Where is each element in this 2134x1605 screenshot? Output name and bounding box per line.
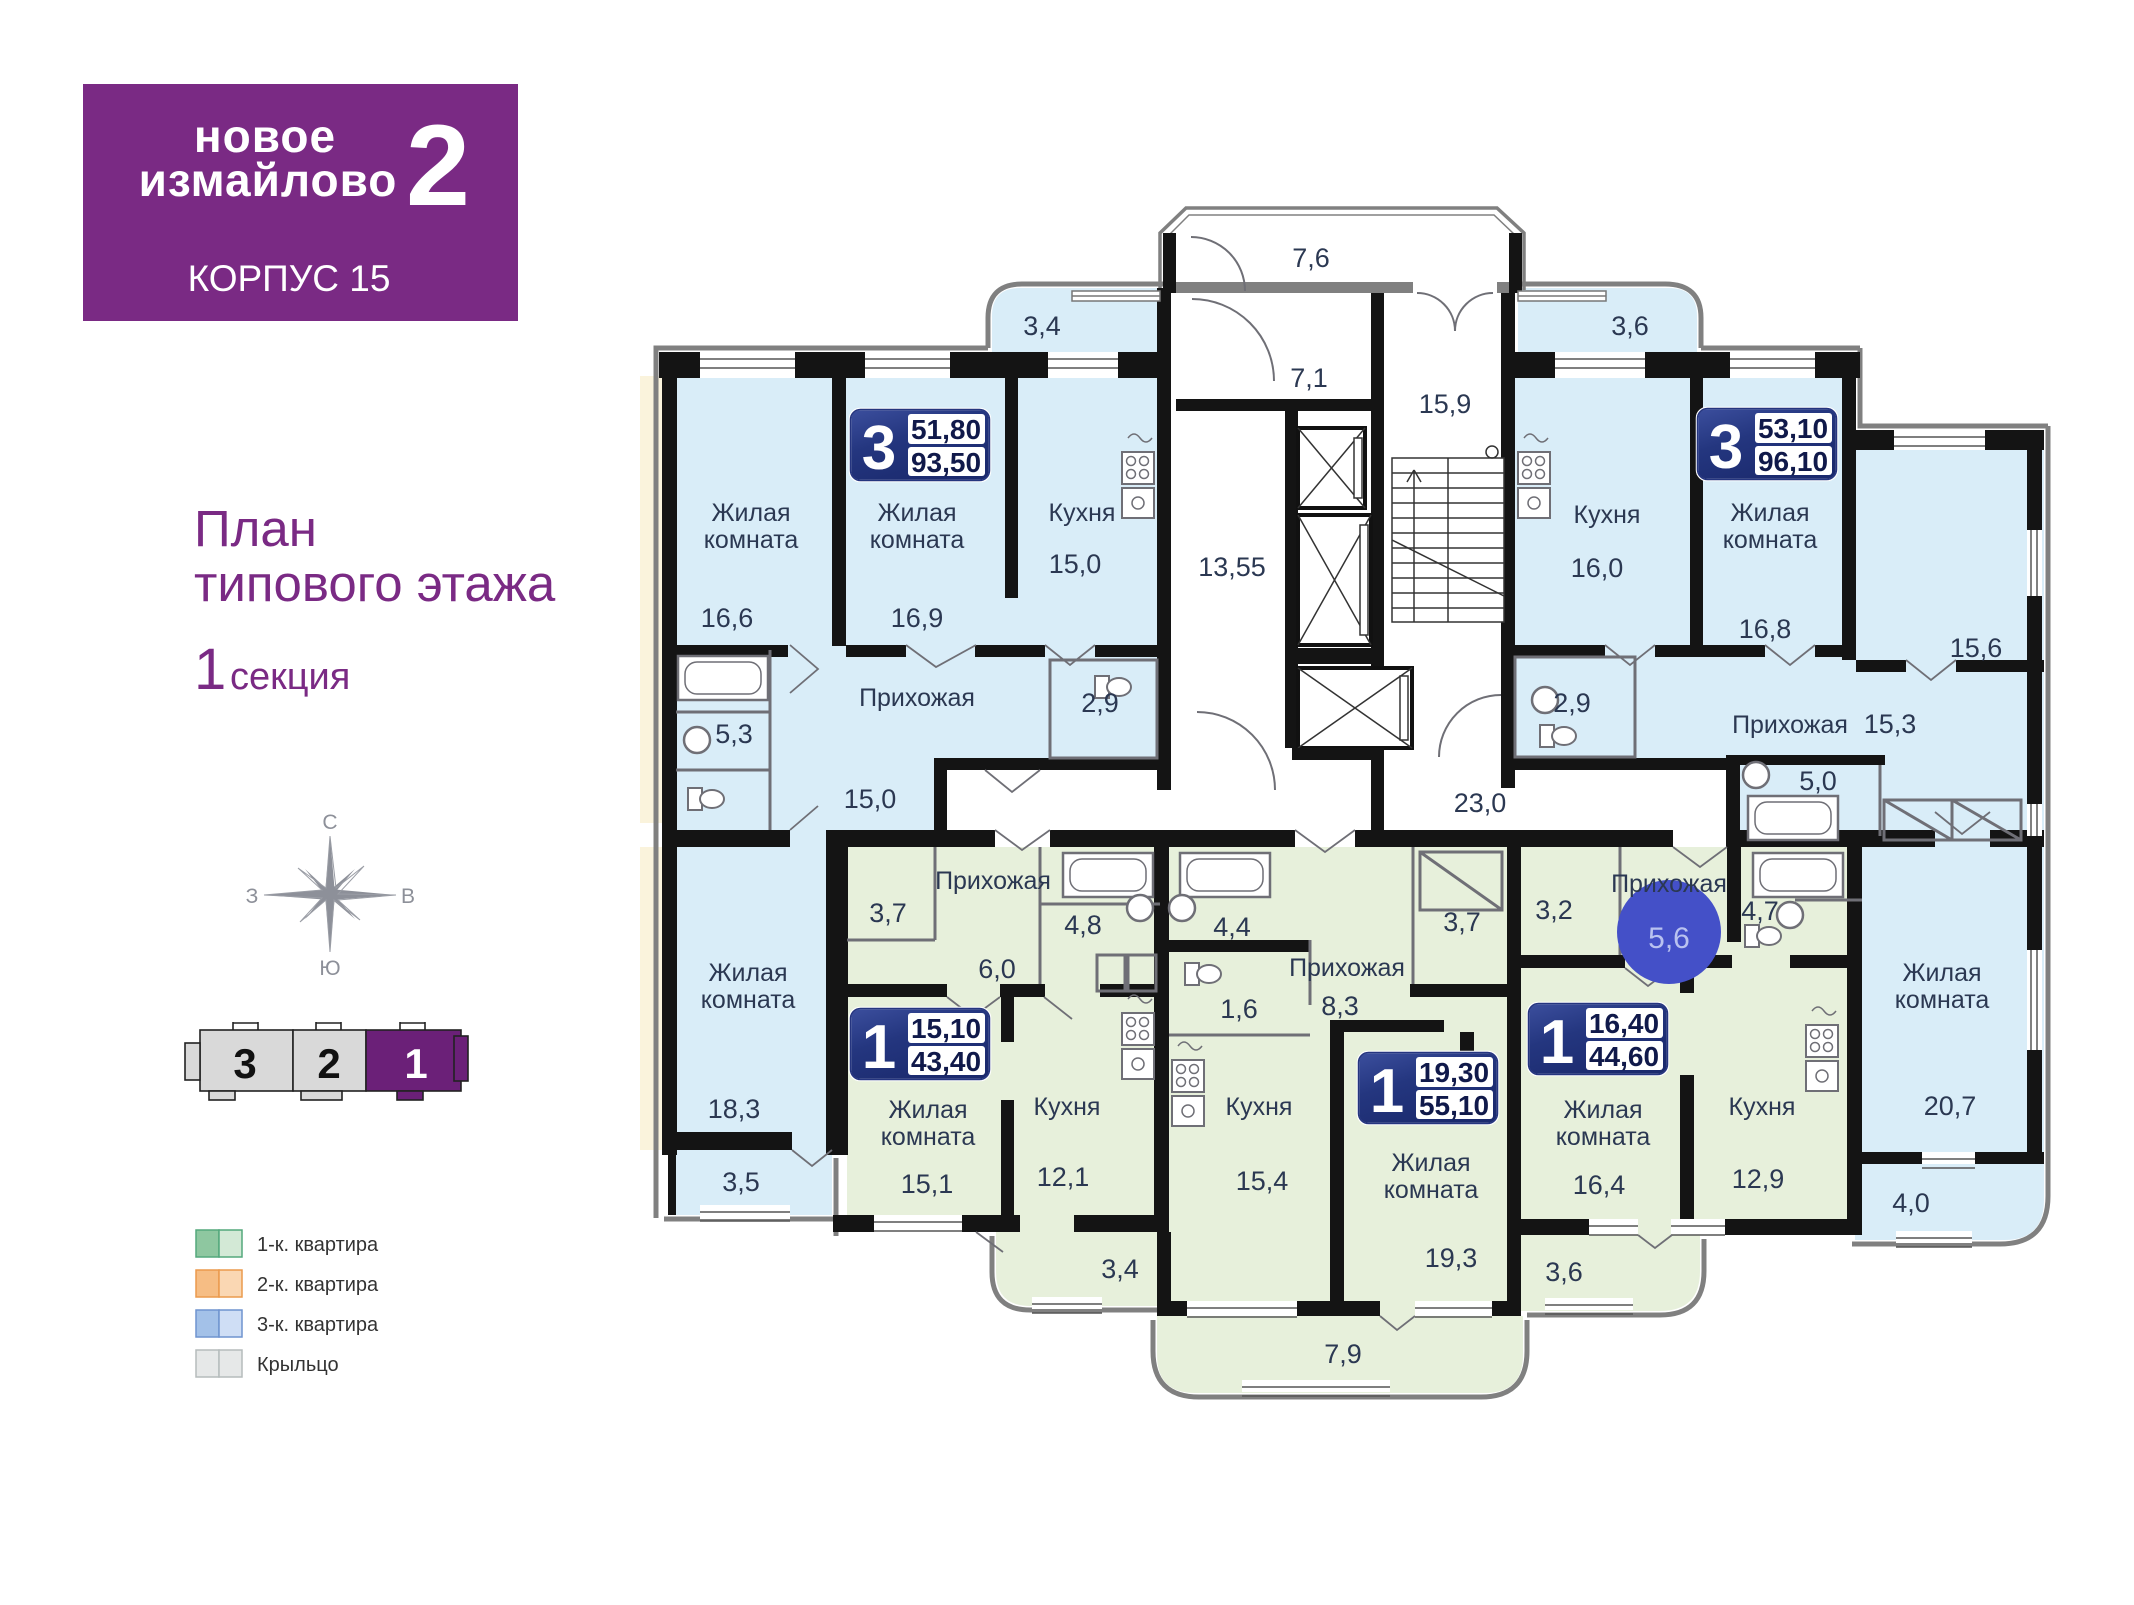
svg-text:13,55: 13,55 [1198,552,1266,582]
svg-text:8,3: 8,3 [1321,991,1359,1021]
svg-text:1: 1 [1540,1008,1574,1077]
svg-text:Кухня: Кухня [1049,499,1116,527]
svg-text:Ю: Ю [319,957,340,980]
svg-text:16,40: 16,40 [1589,1008,1659,1039]
svg-text:4,0: 4,0 [1892,1188,1930,1218]
svg-text:Кухня: Кухня [1226,1093,1293,1121]
svg-text:Жилая: Жилая [1730,499,1809,527]
svg-text:96,10: 96,10 [1758,446,1828,477]
svg-text:4,7: 4,7 [1741,896,1779,926]
svg-text:20,7: 20,7 [1924,1091,1977,1121]
svg-text:7,9: 7,9 [1324,1339,1362,1369]
svg-text:2,9: 2,9 [1081,688,1119,718]
svg-text:44,60: 44,60 [1589,1041,1659,1072]
svg-text:19,30: 19,30 [1419,1057,1489,1088]
svg-text:3: 3 [862,414,896,483]
svg-text:Кухня: Кухня [1729,1093,1796,1121]
svg-text:2: 2 [317,1040,340,1087]
svg-text:План: План [194,500,317,557]
svg-text:3,6: 3,6 [1545,1257,1583,1287]
svg-text:Прихожая: Прихожая [859,684,975,712]
svg-text:93,50: 93,50 [911,447,981,478]
svg-text:С: С [322,811,337,834]
svg-text:15,1: 15,1 [901,1169,954,1199]
svg-text:12,1: 12,1 [1037,1162,1090,1192]
svg-text:3,2: 3,2 [1535,895,1573,925]
svg-text:2,9: 2,9 [1553,688,1591,718]
svg-text:15,9: 15,9 [1419,389,1472,419]
svg-text:комната: комната [1556,1123,1651,1151]
svg-text:16,6: 16,6 [701,603,754,633]
svg-text:16,0: 16,0 [1571,553,1624,583]
svg-text:Прихожая: Прихожая [1289,954,1405,982]
svg-text:1: 1 [404,1040,427,1087]
svg-text:53,10: 53,10 [1758,413,1828,444]
svg-text:3,5: 3,5 [722,1167,760,1197]
svg-text:55,10: 55,10 [1419,1090,1489,1121]
svg-text:3: 3 [233,1040,256,1087]
svg-text:комната: комната [881,1123,976,1151]
svg-text:КОРПУС 15: КОРПУС 15 [188,258,391,299]
svg-text:Жилая: Жилая [1902,959,1981,987]
svg-text:Жилая: Жилая [1391,1149,1470,1177]
svg-text:Прихожая: Прихожая [935,867,1051,895]
svg-text:Кухня: Кухня [1574,501,1641,529]
svg-text:23,0: 23,0 [1454,788,1507,818]
svg-text:1: 1 [194,637,226,702]
svg-text:Жилая: Жилая [711,499,790,527]
svg-text:комната: комната [701,986,796,1014]
svg-text:5,6: 5,6 [1648,922,1690,955]
svg-text:1: 1 [1370,1057,1404,1126]
svg-text:Кухня: Кухня [1034,1093,1101,1121]
svg-text:Прихожая: Прихожая [1611,870,1727,898]
svg-text:типового этажа: типового этажа [194,555,556,612]
svg-text:16,4: 16,4 [1573,1170,1626,1200]
svg-text:51,80: 51,80 [911,414,981,445]
svg-text:19,3: 19,3 [1425,1243,1478,1273]
svg-text:Жилая: Жилая [877,499,956,527]
svg-text:1,6: 1,6 [1220,994,1258,1024]
svg-text:15,6: 15,6 [1950,633,2003,663]
svg-text:секция: секция [230,656,350,698]
svg-text:2-к. квартира: 2-к. квартира [257,1274,379,1296]
svg-text:15,0: 15,0 [844,784,897,814]
svg-text:4,8: 4,8 [1064,910,1102,940]
svg-text:5,0: 5,0 [1799,766,1837,796]
svg-text:7,1: 7,1 [1290,363,1328,393]
svg-text:3,7: 3,7 [869,898,907,928]
svg-text:Жилая: Жилая [708,959,787,987]
svg-text:12,9: 12,9 [1732,1164,1785,1194]
svg-text:комната: комната [1723,526,1818,554]
svg-text:16,8: 16,8 [1739,614,1792,644]
svg-text:15,0: 15,0 [1049,549,1102,579]
svg-text:16,9: 16,9 [891,603,944,633]
svg-text:3,7: 3,7 [1443,907,1481,937]
svg-text:комната: комната [870,526,965,554]
svg-text:1: 1 [862,1013,896,1082]
svg-text:18,3: 18,3 [708,1094,761,1124]
svg-text:комната: комната [1384,1176,1479,1204]
svg-text:Крыльцо: Крыльцо [257,1354,339,1376]
svg-text:Жилая: Жилая [888,1096,967,1124]
svg-text:5,3: 5,3 [715,719,753,749]
svg-text:3,6: 3,6 [1611,311,1649,341]
svg-text:Прихожая: Прихожая [1732,711,1848,739]
svg-text:3: 3 [1709,413,1743,482]
svg-text:комната: комната [704,526,799,554]
svg-text:3,4: 3,4 [1101,1254,1139,1284]
svg-text:Жилая: Жилая [1563,1096,1642,1124]
svg-text:4,4: 4,4 [1213,912,1251,942]
svg-text:1-к. квартира: 1-к. квартира [257,1234,379,1256]
svg-text:2: 2 [406,102,470,230]
svg-text:измайлово: измайлово [139,154,398,206]
svg-text:15,3: 15,3 [1864,709,1917,739]
svg-text:3,4: 3,4 [1023,311,1061,341]
svg-text:43,40: 43,40 [911,1046,981,1077]
svg-text:В: В [401,885,415,908]
svg-text:3-к. квартира: 3-к. квартира [257,1314,379,1336]
svg-text:15,10: 15,10 [911,1013,981,1044]
svg-text:комната: комната [1895,986,1990,1014]
svg-text:6,0: 6,0 [978,954,1016,984]
svg-text:З: З [246,885,259,908]
svg-text:15,4: 15,4 [1236,1166,1289,1196]
svg-text:7,6: 7,6 [1292,243,1330,273]
